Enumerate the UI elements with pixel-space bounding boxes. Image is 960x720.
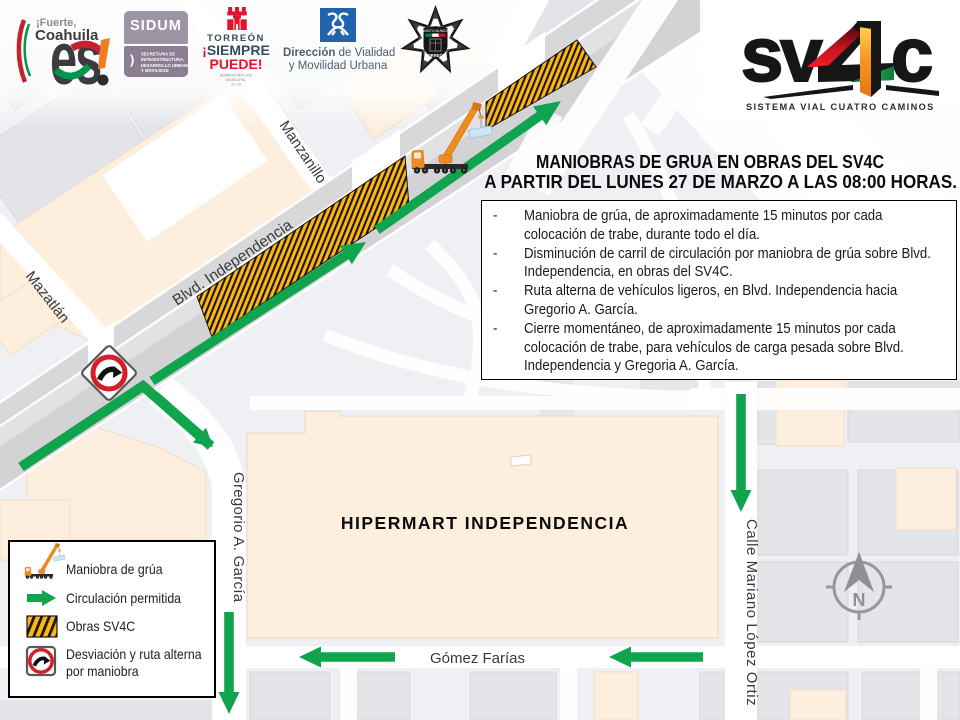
svg-text:TORREÓN: TORREÓN [425, 53, 446, 58]
svg-text:TRÁNSITO MUNICIPAL: TRÁNSITO MUNICIPAL [417, 29, 453, 33]
svg-text:c: c [891, 13, 933, 98]
svg-text:sv: sv [741, 13, 822, 98]
svg-text:Gómez Farías: Gómez Farías [430, 650, 525, 667]
svg-text:Gregorio A. García: Gregorio A. García [230, 472, 247, 603]
svg-text:N: N [853, 590, 866, 610]
svg-text:SISTEMA VIAL CUATRO CAMINOS: SISTEMA VIAL CUATRO CAMINOS [746, 102, 935, 112]
svg-text:es: es [50, 18, 101, 90]
svg-text:Calle Mariano López Ortiz: Calle Mariano López Ortiz [743, 519, 760, 706]
